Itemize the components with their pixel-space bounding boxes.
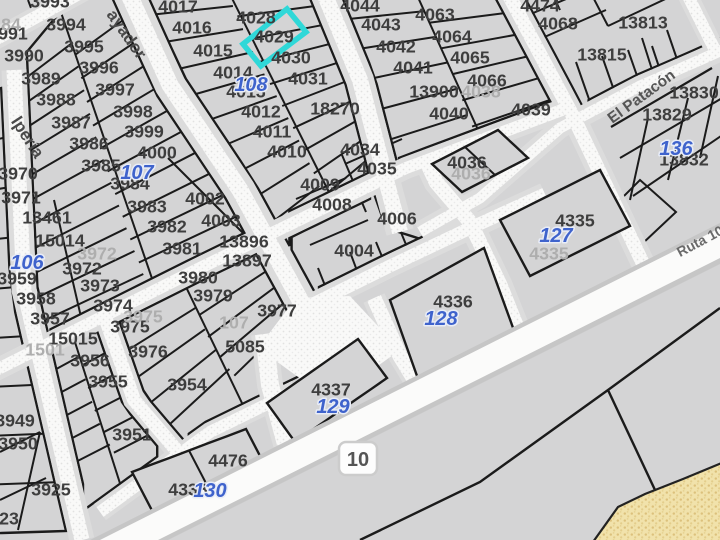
svg-text:4038: 4038 [461, 81, 501, 101]
svg-text:3950: 3950 [0, 433, 38, 453]
svg-text:13461: 13461 [22, 207, 72, 227]
svg-text:136: 136 [659, 138, 693, 160]
svg-text:10: 10 [347, 449, 369, 471]
svg-text:4028: 4028 [236, 7, 276, 27]
svg-text:3995: 3995 [64, 36, 104, 56]
svg-text:3954: 3954 [167, 374, 207, 394]
svg-text:4063: 4063 [415, 4, 455, 24]
svg-text:3986: 3986 [69, 133, 109, 153]
svg-text:3989: 3989 [21, 68, 61, 88]
svg-text:107: 107 [120, 162, 154, 184]
svg-text:3980: 3980 [178, 267, 218, 287]
svg-text:3975: 3975 [123, 306, 163, 326]
svg-text:13813: 13813 [618, 12, 668, 32]
svg-text:3977: 3977 [257, 300, 297, 320]
svg-text:3955: 3955 [88, 371, 128, 391]
svg-text:3956: 3956 [70, 350, 110, 370]
svg-text:4030: 4030 [271, 47, 311, 67]
svg-text:1501: 1501 [25, 339, 65, 359]
svg-text:3987: 3987 [51, 112, 91, 132]
svg-text:3973: 3973 [80, 275, 120, 295]
svg-text:3990: 3990 [4, 45, 44, 65]
svg-text:4040: 4040 [429, 103, 469, 123]
svg-text:4068: 4068 [538, 13, 578, 33]
svg-text:108: 108 [234, 74, 268, 96]
svg-text:4004: 4004 [334, 240, 374, 260]
svg-text:4034: 4034 [340, 139, 380, 159]
svg-text:4036: 4036 [451, 163, 491, 183]
svg-text:128: 128 [424, 308, 458, 330]
svg-text:4043: 4043 [361, 14, 401, 34]
svg-text:4006: 4006 [377, 208, 417, 228]
svg-text:3949: 3949 [0, 410, 35, 430]
svg-text:3994: 3994 [46, 14, 86, 34]
svg-text:4009: 4009 [300, 174, 340, 194]
svg-text:4065: 4065 [450, 47, 490, 67]
svg-text:4003: 4003 [201, 210, 241, 230]
svg-text:4042: 4042 [376, 36, 416, 56]
svg-text:3996: 3996 [79, 57, 119, 77]
svg-text:4000: 4000 [137, 142, 177, 162]
svg-text:129: 129 [316, 396, 350, 418]
svg-text:4031: 4031 [288, 68, 328, 88]
svg-text:13896: 13896 [219, 231, 269, 251]
svg-text:23: 23 [0, 508, 19, 528]
svg-text:3999: 3999 [124, 121, 164, 141]
svg-text:3951: 3951 [112, 424, 152, 444]
svg-text:3993: 3993 [30, 0, 70, 11]
svg-text:4064: 4064 [432, 26, 472, 46]
svg-text:4476: 4476 [208, 450, 248, 470]
svg-text:4011: 4011 [253, 121, 292, 141]
svg-text:3957: 3957 [30, 308, 70, 328]
svg-text:3983: 3983 [127, 196, 167, 216]
svg-text:4044: 4044 [340, 0, 380, 15]
svg-text:4015: 4015 [193, 40, 233, 60]
svg-text:3998: 3998 [113, 101, 153, 121]
svg-text:4012: 4012 [241, 101, 281, 121]
svg-text:3982: 3982 [147, 216, 187, 236]
svg-text:3958: 3958 [16, 288, 56, 308]
svg-text:3970: 3970 [0, 163, 38, 183]
svg-text:3979: 3979 [193, 285, 233, 305]
svg-text:5085: 5085 [225, 336, 265, 356]
svg-text:4008: 4008 [312, 194, 352, 214]
svg-text:3981: 3981 [162, 238, 202, 258]
svg-text:4035: 4035 [357, 158, 397, 178]
svg-text:13829: 13829 [642, 104, 692, 124]
svg-text:84: 84 [1, 14, 21, 34]
svg-text:13897: 13897 [222, 250, 272, 270]
svg-text:3997: 3997 [95, 79, 135, 99]
svg-text:4010: 4010 [267, 141, 307, 161]
svg-text:13815: 13815 [577, 44, 627, 64]
svg-text:3985: 3985 [81, 155, 121, 175]
svg-text:4016: 4016 [172, 17, 212, 37]
svg-text:3988: 3988 [36, 89, 76, 109]
svg-text:3971: 3971 [1, 187, 41, 207]
svg-text:13830: 13830 [669, 82, 719, 102]
svg-text:130: 130 [193, 480, 226, 502]
svg-text:3925: 3925 [31, 479, 71, 499]
svg-text:3972: 3972 [77, 243, 117, 263]
svg-text:13900: 13900 [409, 81, 459, 101]
svg-text:107: 107 [219, 312, 249, 332]
svg-text:4041: 4041 [393, 57, 433, 77]
svg-text:127: 127 [539, 225, 573, 247]
svg-text:4029: 4029 [254, 26, 294, 46]
svg-text:4002: 4002 [185, 188, 225, 208]
svg-text:4039: 4039 [511, 99, 551, 119]
svg-text:18270: 18270 [310, 98, 360, 118]
svg-text:4017: 4017 [158, 0, 198, 16]
svg-text:106: 106 [10, 252, 44, 274]
svg-text:3976: 3976 [128, 341, 168, 361]
